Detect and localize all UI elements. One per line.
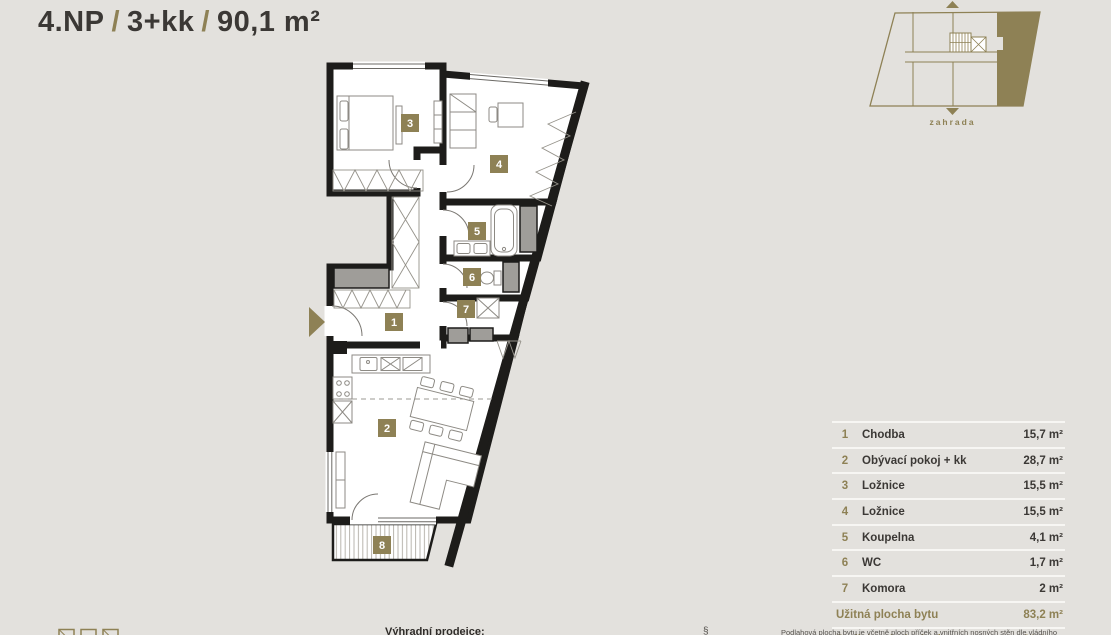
wardrobe-room4 (450, 94, 476, 148)
garden-arrow-icon (946, 108, 959, 115)
table-row: 6 WC 1,7 m² (832, 549, 1065, 575)
room-badge-8: 8 (373, 536, 391, 554)
table-row: 1 Chodba 15,7 m² (832, 421, 1065, 447)
bathroom-vanity (454, 241, 490, 256)
site-minimap: zahrada (860, 0, 1060, 130)
svg-text:6: 6 (469, 272, 475, 284)
room-badge-2: 2 (378, 419, 396, 437)
table-row: 5 Koupelna 4,1 m² (832, 524, 1065, 550)
room-number: 3 (836, 480, 854, 492)
svg-text:8: 8 (379, 540, 385, 552)
summary-area: 83,2 m² (1023, 609, 1063, 621)
table-row: 4 Ložnice 15,5 m² (832, 498, 1065, 524)
room-number: 6 (836, 557, 854, 569)
room-area: 15,5 m² (1023, 480, 1063, 492)
seller-label: Výhradní prodejce: (385, 626, 485, 635)
room-legend-table: 1 Chodba 15,7 m² 2 Obývací pokoj + kk 28… (832, 421, 1065, 635)
svg-text:3: 3 (407, 118, 413, 130)
svg-text:1: 1 (391, 317, 397, 329)
room-name: Obývací pokoj + kk (862, 455, 1023, 467)
washing-machine (477, 298, 499, 318)
room-name: Chodba (862, 429, 1023, 441)
bathtub (491, 205, 517, 256)
summary-row-usable-area: Užitná plocha bytu 83,2 m² (832, 601, 1065, 627)
north-arrow-icon (946, 1, 959, 8)
entrance-arrow-icon (309, 307, 325, 337)
dresser-room3 (434, 101, 442, 143)
room-area: 2 m² (1039, 583, 1063, 595)
paragraph-symbol: § (703, 626, 709, 635)
floorplan-page: 4.NP/3+kk/90,1 m² zahrada (0, 0, 1111, 635)
room-number: 1 (836, 429, 854, 441)
svg-text:2: 2 (384, 423, 390, 435)
title-floor: 4.NP (38, 6, 104, 38)
room-name: Koupelna (862, 532, 1030, 544)
summary-label: Užitná plocha bytu (836, 609, 1023, 621)
svg-text:7: 7 (463, 304, 469, 316)
room-number: 7 (836, 583, 854, 595)
title-separator: / (104, 6, 127, 38)
footer-logo-icons (55, 627, 135, 635)
minimap-highlighted-unit (997, 12, 1040, 106)
room-area: 28,7 m² (1023, 455, 1063, 467)
floor-plan: 1 2 3 4 5 6 7 (270, 50, 600, 574)
room-name: Ložnice (862, 506, 1023, 518)
room-name: WC (862, 557, 1030, 569)
room-area: 1,7 m² (1030, 557, 1063, 569)
room-area: 15,7 m² (1023, 429, 1063, 441)
elevator-icon (971, 37, 986, 52)
title-separator: / (194, 6, 217, 38)
svg-text:5: 5 (474, 226, 480, 238)
room-badge-3: 3 (401, 114, 419, 132)
svg-text:4: 4 (496, 159, 503, 171)
room-area: 4,1 m² (1030, 532, 1063, 544)
bed-room3 (337, 96, 402, 150)
wall-block (333, 341, 347, 354)
room-name: Komora (862, 583, 1039, 595)
room-badge-1: 1 (385, 313, 403, 331)
room-area: 15,5 m² (1023, 506, 1063, 518)
table-row: 2 Obývací pokoj + kk 28,7 m² (832, 447, 1065, 473)
minimap-interior-walls (905, 12, 997, 106)
room-badge-4: 4 (490, 155, 508, 173)
toilet (481, 271, 502, 285)
room-name: Ložnice (862, 480, 1023, 492)
room-badge-7: 7 (457, 300, 475, 318)
page-title: 4.NP/3+kk/90,1 m² (38, 6, 320, 39)
room-number: 4 (836, 506, 854, 518)
room-number: 2 (836, 455, 854, 467)
garden-label: zahrada (929, 117, 975, 127)
room-badge-5: 5 (468, 222, 486, 240)
title-area: 90,1 m² (217, 6, 320, 38)
footer-disclaimer: Podlahová plocha bytu je včetně ploch př… (781, 628, 1111, 635)
title-layout: 3+kk (127, 6, 194, 38)
table-row: 3 Ložnice 15,5 m² (832, 472, 1065, 498)
sideboard (336, 452, 345, 508)
room-badge-6: 6 (463, 268, 481, 286)
room-number: 5 (836, 532, 854, 544)
table-row: 7 Komora 2 m² (832, 575, 1065, 601)
logo-square-icon (81, 630, 96, 635)
stairs-icon (950, 33, 971, 52)
